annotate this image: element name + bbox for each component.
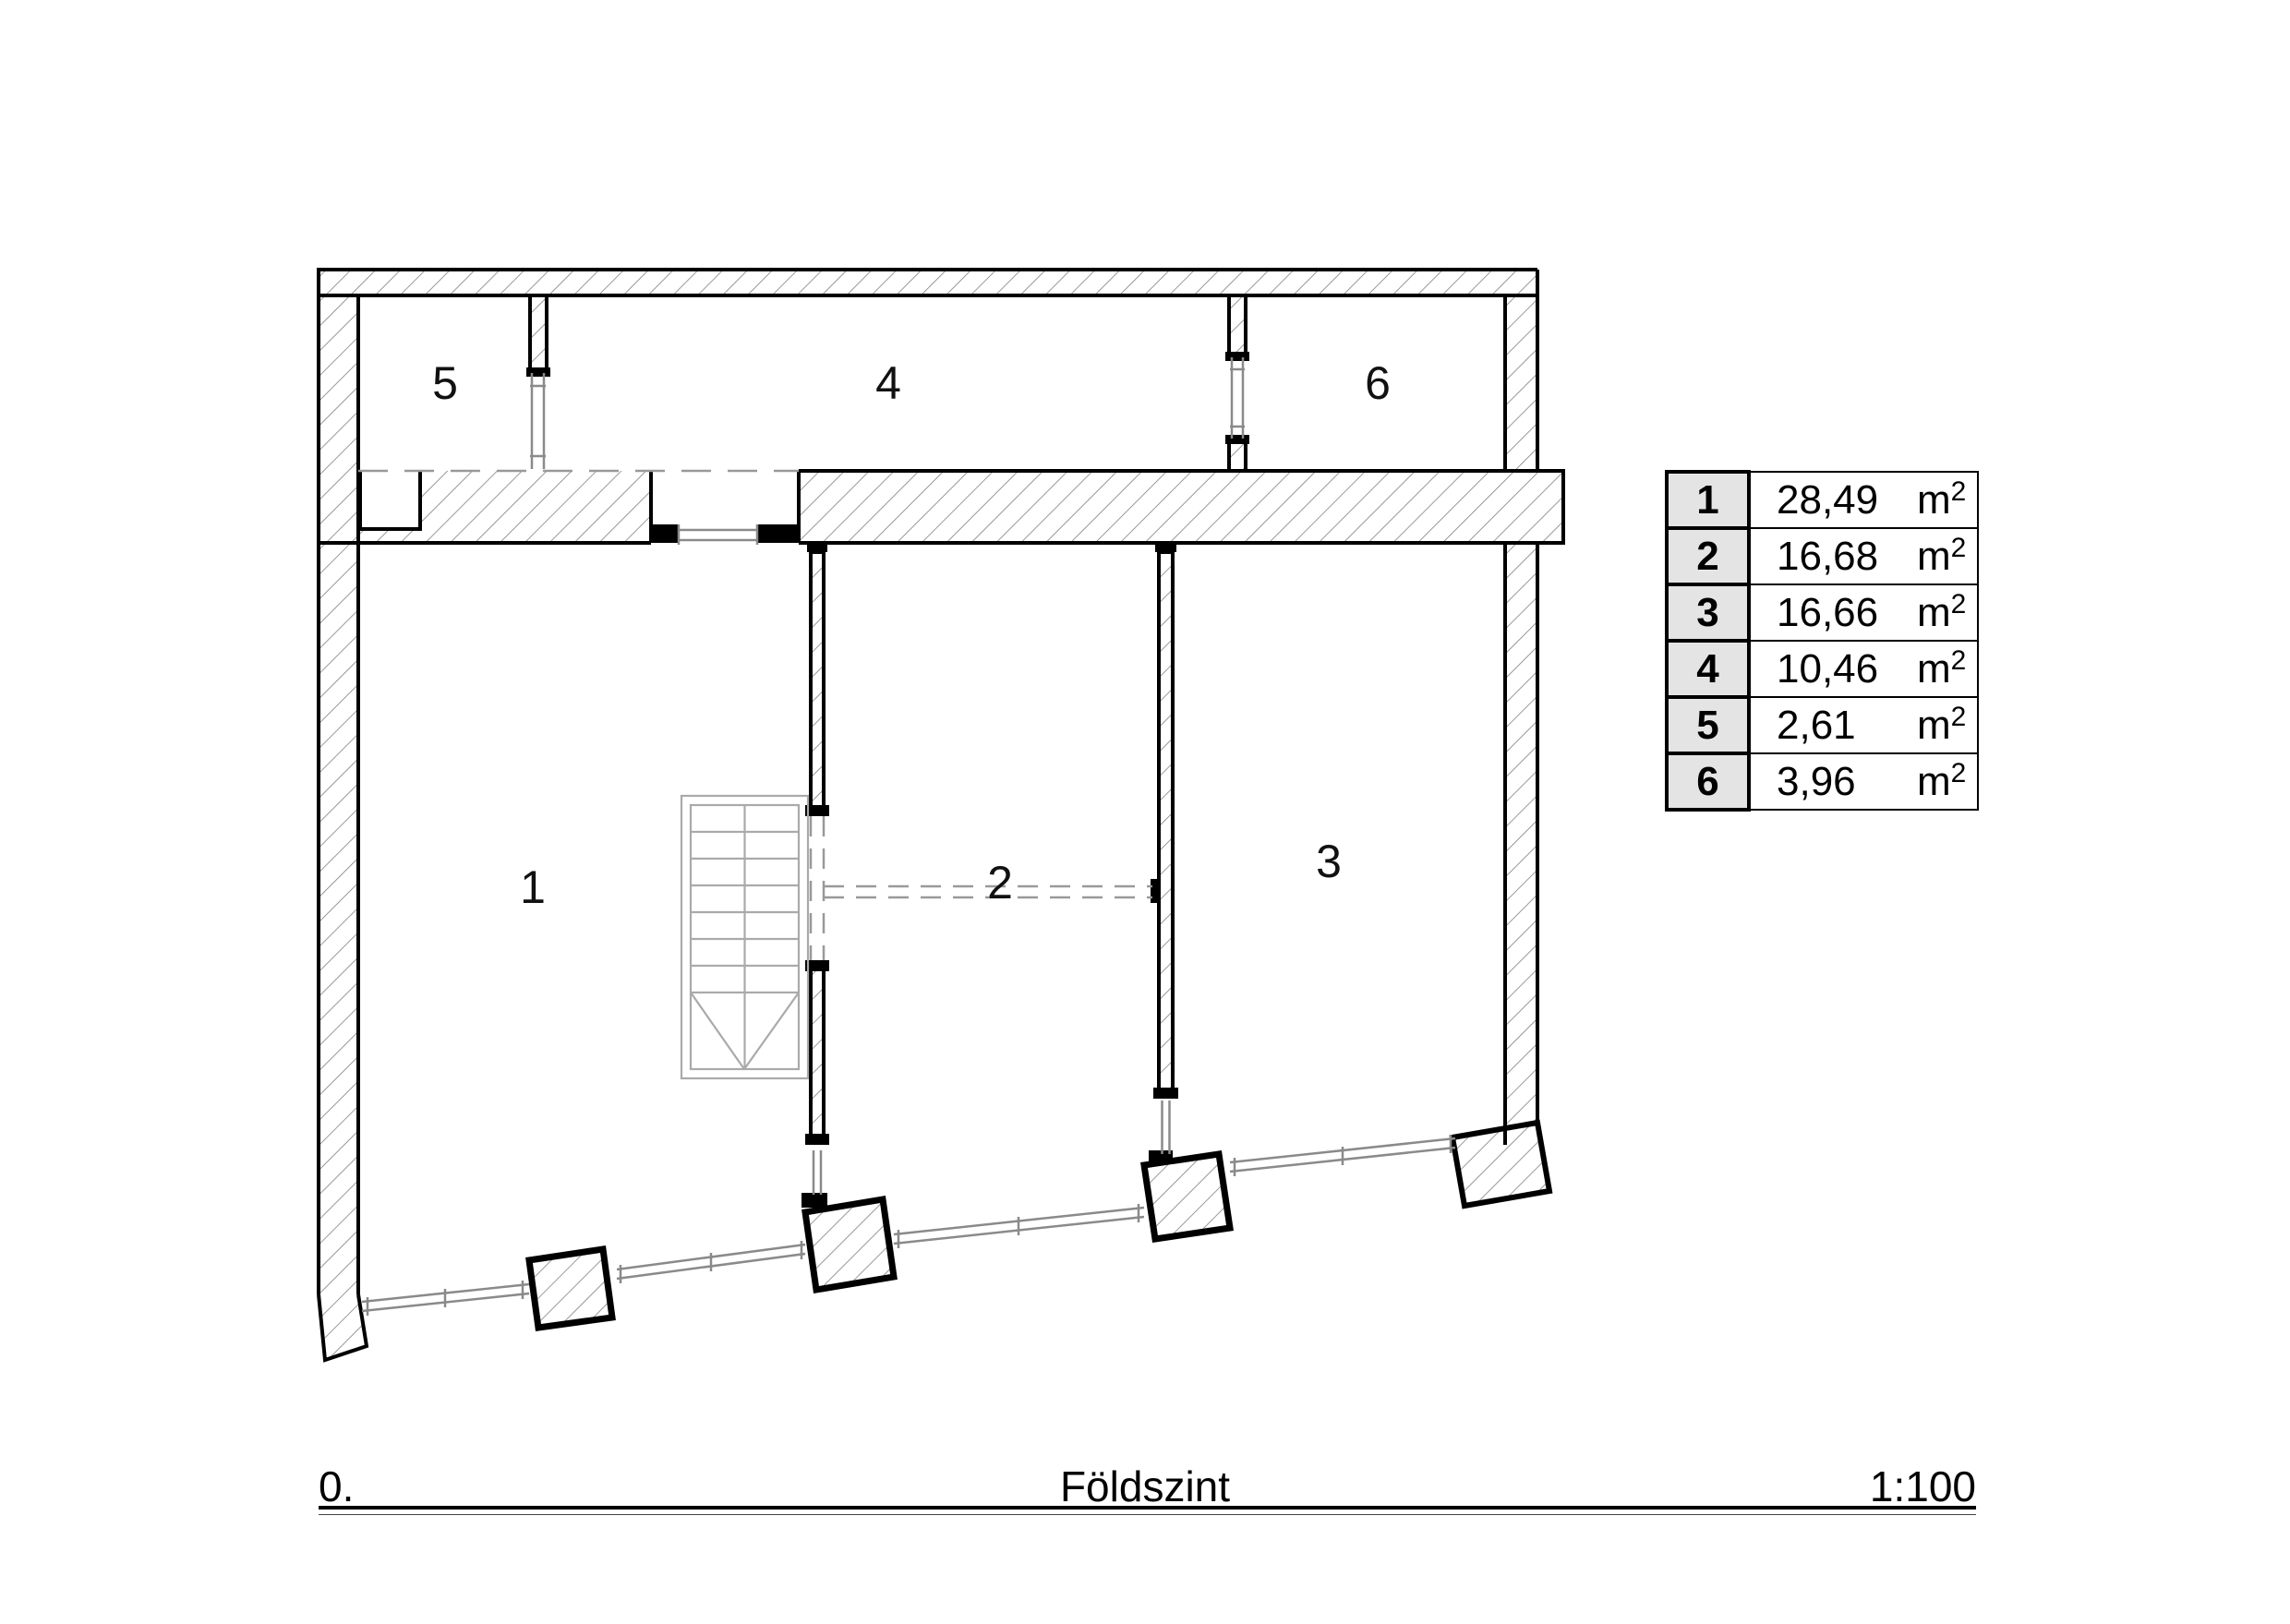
room-area-cell: 3,96m2	[1749, 753, 1978, 810]
middle-wall-band	[319, 471, 1563, 543]
room-number-cell: 4	[1667, 641, 1749, 697]
room-area-cell: 10,46m2	[1749, 641, 1978, 697]
room-area-cell: 28,49m2	[1749, 472, 1978, 528]
floor-plan-drawing: 1 2 3 4 5 6	[0, 0, 2290, 1624]
pillar-3	[1144, 1154, 1230, 1239]
room-number-cell: 6	[1667, 753, 1749, 810]
room-number-cell: 5	[1667, 697, 1749, 753]
title-rule-thick	[319, 1506, 1976, 1510]
table-row: 6 3,96m2	[1667, 753, 1978, 810]
staircase	[681, 796, 808, 1078]
room-area-table: 1 28,49m2 2 16,68m2 3 16,66m2 4 10,46m2 …	[1665, 470, 1979, 812]
room-area-cell: 2,61m2	[1749, 697, 1978, 753]
table-row: 3 16,66m2	[1667, 584, 1978, 641]
room-label-1: 1	[520, 861, 546, 913]
table-row: 1 28,49m2	[1667, 472, 1978, 528]
room-label-2: 2	[987, 857, 1013, 908]
floor-plan-sheet: 1 2 3 4 5 6 1 28,49m2 2 16,68m2 3 16,66m…	[0, 0, 2290, 1624]
title-rule-thin	[319, 1514, 1976, 1515]
pillar-1	[529, 1249, 612, 1328]
partition-walls	[530, 295, 1246, 1137]
facade-windows	[362, 1135, 1455, 1316]
pillar-2	[805, 1199, 894, 1290]
room-label-4: 4	[875, 357, 901, 409]
room-number-cell: 1	[1667, 472, 1749, 528]
wall-outlines	[317, 270, 1563, 1360]
table-row: 4 10,46m2	[1667, 641, 1978, 697]
drawing-scale: 1:100	[1838, 1462, 1976, 1511]
facade-pillars	[529, 1154, 1230, 1328]
table-row: 2 16,68m2	[1667, 528, 1978, 584]
room-number-cell: 3	[1667, 584, 1749, 641]
table-row: 5 2,61m2	[1667, 697, 1978, 753]
room-area-cell: 16,68m2	[1749, 528, 1978, 584]
room-number-cell: 2	[1667, 528, 1749, 584]
room-area-cell: 16,66m2	[1749, 584, 1978, 641]
outer-walls	[319, 270, 1563, 1360]
room-label-6: 6	[1365, 357, 1391, 409]
room-label-5: 5	[432, 357, 458, 409]
room-label-3: 3	[1316, 836, 1342, 887]
